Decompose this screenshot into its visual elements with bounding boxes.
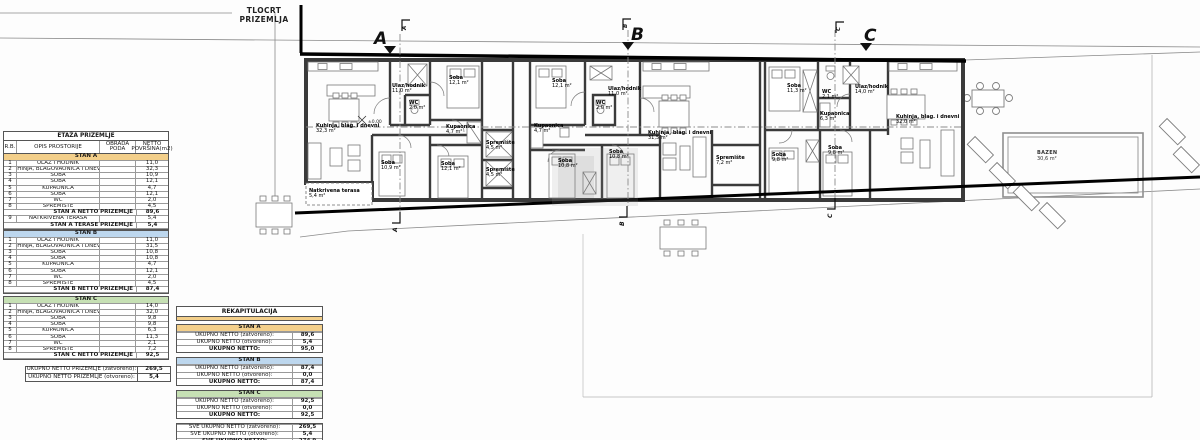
table-title: ETAŽA PRIZEMLJE [4,132,168,141]
table-cell: SOBA [17,322,100,327]
table-cell [100,179,136,184]
table-cell: SOBA [17,316,100,321]
bed-icon [447,66,479,108]
table-cell: WC [17,198,100,203]
room-area: 12,1 m² [552,84,572,89]
grand-total-label: UKUPNO NETTO PRIZEMLJE (otvoreno): [26,375,137,380]
rekap-value: 0,0 [292,373,322,379]
rekap-block: STAN BUKUPNO NETTO (zatvoreno):87,4UKUPN… [176,357,323,386]
table-cell: 12,1 [136,269,168,274]
table-cell [100,262,136,267]
room-area: 2,0 m² [409,106,425,111]
table-cell: 4,7 [136,186,168,191]
room-area: 10,8 m² [558,164,578,169]
total-label: STAN A NETTO PRIZEMLJE [4,210,136,215]
room-area: 10,8 m² [609,155,629,160]
rekap-label: UKUPNO NETTO: [177,347,292,352]
rekap-row: UKUPNO NETTO (zatvoreno):87,4 [177,365,322,372]
rekap-label: UKUPNO NETTO: [177,380,292,385]
rekap-row: UKUPNO NETTO (otvoreno):0,0 [177,405,322,412]
rekap-value: 87,4 [292,366,322,372]
room-area: 7,2 m² [716,161,745,166]
room-area: 4,5 m² [486,146,515,151]
rekap-label: UKUPNO NETTO (zatvoreno): [177,366,292,371]
section-header: STAN A [4,154,168,161]
table-cell: KUPAONICA [17,186,100,191]
plan-title: TLOCRT PRIZEMLJA [222,6,306,24]
room-label: Soba12,1 m² [449,76,469,87]
column-header: OPIS PROSTORIJE [17,141,100,153]
rekap-row: UKUPNO NETTO (otvoreno):5,4 [177,339,322,346]
table-cell: KUHINJA, BLAGOVAONICA I DNEVNI [17,244,100,249]
total-label: STAN B NETTO PRIZEMLJE [4,287,136,292]
table-cell: 4,7 [136,262,168,267]
room-label: Soba10,9 m² [381,161,401,172]
table-cell: 5 [4,262,17,267]
section-header: STAN A [177,325,322,332]
total-value: 5,4 [136,223,168,228]
room-area: 4,7 m² [446,130,475,135]
pool-area: 30,6 m² [1037,156,1057,162]
rekap-value: 89,6 [292,333,322,339]
room-label: Soba10,8 m² [558,159,578,170]
table-cell: SOBA [17,250,100,255]
rekap-label: UKUPNO NETTO (zatvoreno): [177,333,292,338]
rekap-row: UKUPNO NETTO (zatvoreno):92,5 [177,398,322,405]
table-cell [100,275,136,280]
table-cell: 1 [4,238,17,243]
table-cell: SOBA [17,192,100,197]
table-cell: KUHINJA, BLAGOVAONICA I DNEVNI [17,167,100,172]
room-area: 31,5 m² [648,136,711,141]
room-label: Soba12,1 m² [441,162,461,173]
room-area: 2,1 m² [822,95,838,100]
area-table-stan-a: ETAŽA PRIZEMLJER.B.OPIS PROSTORIJEOBRADA… [3,131,169,230]
room-area: 11,3 m² [787,89,807,94]
table-cell: 5 [4,328,17,333]
table-cell [100,304,136,309]
table-cell: ULAZ I HODNIK [17,238,100,243]
table-cell: 11,0 [136,238,168,243]
room-label: Ulaz/hodnik14,0 m² [855,85,888,96]
table-cell: 8 [4,347,17,352]
rekap-row: UKUPNO NETTO:92,5 [177,411,322,418]
table-cell: 5 [4,186,17,191]
table-cell [100,322,136,327]
outdoor-dining-table [964,83,1013,115]
table-cell [100,335,136,340]
svg-text:B: B [619,221,626,226]
rekap-row: UKUPNO NETTO (otvoreno):0,0 [177,372,322,379]
table-cell: 8 [4,281,17,286]
rekap-value: 95,0 [292,346,322,352]
table-cell [100,256,136,261]
rekap-value: 5,4 [292,340,322,346]
rekap-value: 269,5 [292,425,322,431]
rekap-label: UKUPNO NETTO (otvoreno): [177,406,292,411]
room-label: Ulaz/hodnik11,0 m² [608,87,641,98]
room-area: 12,1 m² [449,81,469,86]
room-label: Kuhinja, blag. i dnevni32,3 m² [316,124,379,135]
rekap-grand-block: SVE UKUPNO NETTO (zatvoreno):269,5SVE UK… [176,423,323,440]
room-area: 9,8 m² [772,158,788,163]
table-cell [100,198,136,203]
area-table-grand-total: UKUPNO NETTO PRIZEMLJE (zatvoreno):269,5… [25,366,171,382]
rekap-label: SVE UKUPNO NETTO (otvoreno): [177,432,292,437]
rekap-value: 0,0 [292,406,322,412]
table-cell [100,310,136,315]
area-table-stan-c: STAN C1ULAZ I HODNIK14,02KUHINJA, BLAGOV… [3,296,169,360]
rekap-label: UKUPNO NETTO (otvoreno): [177,373,292,378]
rekap-label: UKUPNO NETTO (zatvoreno): [177,399,292,404]
room-label: Soba12,1 m² [552,79,572,90]
total-label: STAN A TERASE PRIZEMLJE [4,223,136,228]
area-table-stan-b: STAN B1ULAZ I HODNIK11,02KUHINJA, BLAGOV… [3,230,169,294]
rekap-value: 92,5 [292,399,322,405]
room-label: Kuhinja, blag. i dnevni31,5 m² [648,131,711,142]
room-label: Kupaonica6,3 m² [820,112,849,123]
room-area: 4,5 m² [486,173,515,178]
column-header: R.B. [4,141,17,153]
table-total-row: STAN B NETTO PRIZEMLJE87,4 [4,287,168,293]
svg-text:A: A [392,227,399,233]
table-cell [100,192,136,197]
table-total-row: STAN C NETTO PRIZEMLJE92,5 [4,353,168,359]
room-area: 32,0 m² [896,120,959,125]
room-label: Spremište4,5 m² [486,168,515,179]
svg-text:A: A [402,26,408,31]
rekap-title: REKAPITULACIJA [176,306,323,317]
room-label: Ulaz/hodnik11,0 m² [392,84,425,95]
table-cell [100,186,136,191]
room-area: 6,3 m² [820,117,849,122]
rekap-grand-row: SVE UKUPNO NETTO (otvoreno):5,4 [177,431,322,438]
table-cell: SOBA [17,173,100,178]
bed-icon [823,152,852,196]
table-cell [100,250,136,255]
table-cell [100,238,136,243]
rekap-label: UKUPNO NETTO: [177,413,292,418]
table-cell [100,167,136,172]
room-label: WC2,1 m² [822,90,838,101]
svg-text:C: C [836,27,842,31]
table-cell: 5,4 [136,216,168,221]
room-label: Soba10,8 m² [609,150,629,161]
svg-text:C: C [827,213,834,218]
room-area: 4,7 m² [534,129,563,134]
table-cell: 12,1 [136,179,168,184]
table-cell: 6 [4,269,17,274]
rekap-block: STAN CUKUPNO NETTO (zatvoreno):92,5UKUPN… [176,390,323,419]
table-cell: SOBA [17,335,100,340]
table-cell: SOBA [17,256,100,261]
room-area: 10,9 m² [381,166,401,171]
total-label: STAN C NETTO PRIZEMLJE [4,353,136,358]
room-area: 9,8 m² [828,151,844,156]
room-area: 5,4 m² [309,194,360,199]
table-cell: 6,3 [136,328,168,333]
table-cell: WC [17,275,100,280]
room-label: Spremište7,2 m² [716,156,745,167]
column-header-row: R.B.OPIS PROSTORIJEOBRADA PODANETTO POVR… [4,141,168,154]
rekap-value: 87,4 [292,379,322,385]
room-label: Soba11,3 m² [787,84,807,95]
table-cell [100,328,136,333]
table-cell: WC [17,341,100,346]
grand-total-label: UKUPNO NETTO PRIZEMLJE (zatvoreno): [26,367,137,372]
grand-total-value: 269,5 [137,367,170,373]
rekap-row: UKUPNO NETTO:95,0 [177,345,322,352]
room-area: 14,0 m² [855,90,888,95]
room-area: 2,0 m² [596,106,612,111]
grand-total-row: UKUPNO NETTO PRIZEMLJE (otvoreno):5,4 [26,374,170,381]
room-label: Natkrivena terasa5,4 m² [309,189,360,200]
room-label: Kupaonica4,7 m² [534,124,563,135]
section-header: STAN C [177,391,322,398]
room-label: Spremište4,5 m² [486,141,515,152]
table-cell: 9 [4,216,17,221]
rekap-label: UKUPNO NETTO (otvoreno): [177,340,292,345]
column-header: NETTO POVRŠINA(m2) [136,141,168,153]
room-label: Soba9,8 m² [772,153,788,164]
table-cell [100,244,136,249]
rekap-value: 92,5 [292,412,322,418]
rekap-value: 5,4 [292,432,322,438]
table-cell: 4 [4,179,17,184]
room-label: WC2,0 m² [409,101,425,112]
section-header: STAN B [4,231,168,238]
sun-loungers [967,119,1199,229]
table-cell [100,216,136,221]
room-area: 11,0 m² [392,89,425,94]
rekap-grand-row: SVE UKUPNO NETTO (zatvoreno):269,5 [177,424,322,431]
svg-text:B: B [623,24,629,28]
room-area: 12,1 m² [441,167,461,172]
room-label: WC2,0 m² [596,101,612,112]
table-cell [100,161,136,166]
table-cell [100,269,136,274]
rekap-block: STAN AUKUPNO NETTO (zatvoreno):89,6UKUPN… [176,324,323,353]
table-cell: KUPAONICA [17,262,100,267]
table-cell: 1 [4,304,17,309]
table-cell: 8 [4,204,17,209]
pool-label: BAZEN 30,6 m² [1037,150,1057,162]
table-cell: ULAZ I HODNIK [17,304,100,309]
rekap-label: SVE UKUPNO NETTO (zatvoreno): [177,425,292,430]
rekapitulacija-table: REKAPITULACIJASTAN AUKUPNO NETTO (zatvor… [176,306,323,440]
table-total-row: STAN A TERASE PRIZEMLJE5,4 [4,223,168,229]
table-cell: 6 [4,335,17,340]
table-cell: 11,3 [136,335,168,340]
table-cell [100,173,136,178]
room-label: Kupaonica4,7 m² [446,125,475,136]
room-label: Kuhinja, blag. i dnevni32,0 m² [896,115,959,126]
table-cell [100,316,136,321]
rekap-accent-strip [176,317,323,321]
room-label: Soba9,8 m² [828,146,844,157]
section-header: STAN C [4,297,168,304]
room-area: 32,3 m² [316,129,379,134]
room-area: 11,0 m² [608,92,641,97]
rekap-row: UKUPNO NETTO (zatvoreno):89,6 [177,332,322,339]
grand-total-row: UKUPNO NETTO PRIZEMLJE (zatvoreno):269,5 [26,367,170,374]
table-cell [100,341,136,346]
grand-total-value: 5,4 [137,374,170,381]
table-cell: SOBA [17,179,100,184]
total-value: 92,5 [136,353,168,358]
bed-icon [379,152,405,196]
total-value: 87,4 [136,287,168,292]
drawing-canvas: ±0,00 A A B B C C [0,0,1200,440]
table-cell: ULAZ I HODNIK [17,161,100,166]
table-cell: KUHINJA, BLAGOVAONICA I DNEVNI [17,310,100,315]
table-cell: 14,0 [136,304,168,309]
table-cell: NATKRIVENA TERASA [17,216,100,221]
table-cell: KUPAONICA [17,328,100,333]
table-cell: SOBA [17,269,100,274]
rekap-row: UKUPNO NETTO:87,4 [177,378,322,385]
section-header: STAN B [177,358,322,365]
